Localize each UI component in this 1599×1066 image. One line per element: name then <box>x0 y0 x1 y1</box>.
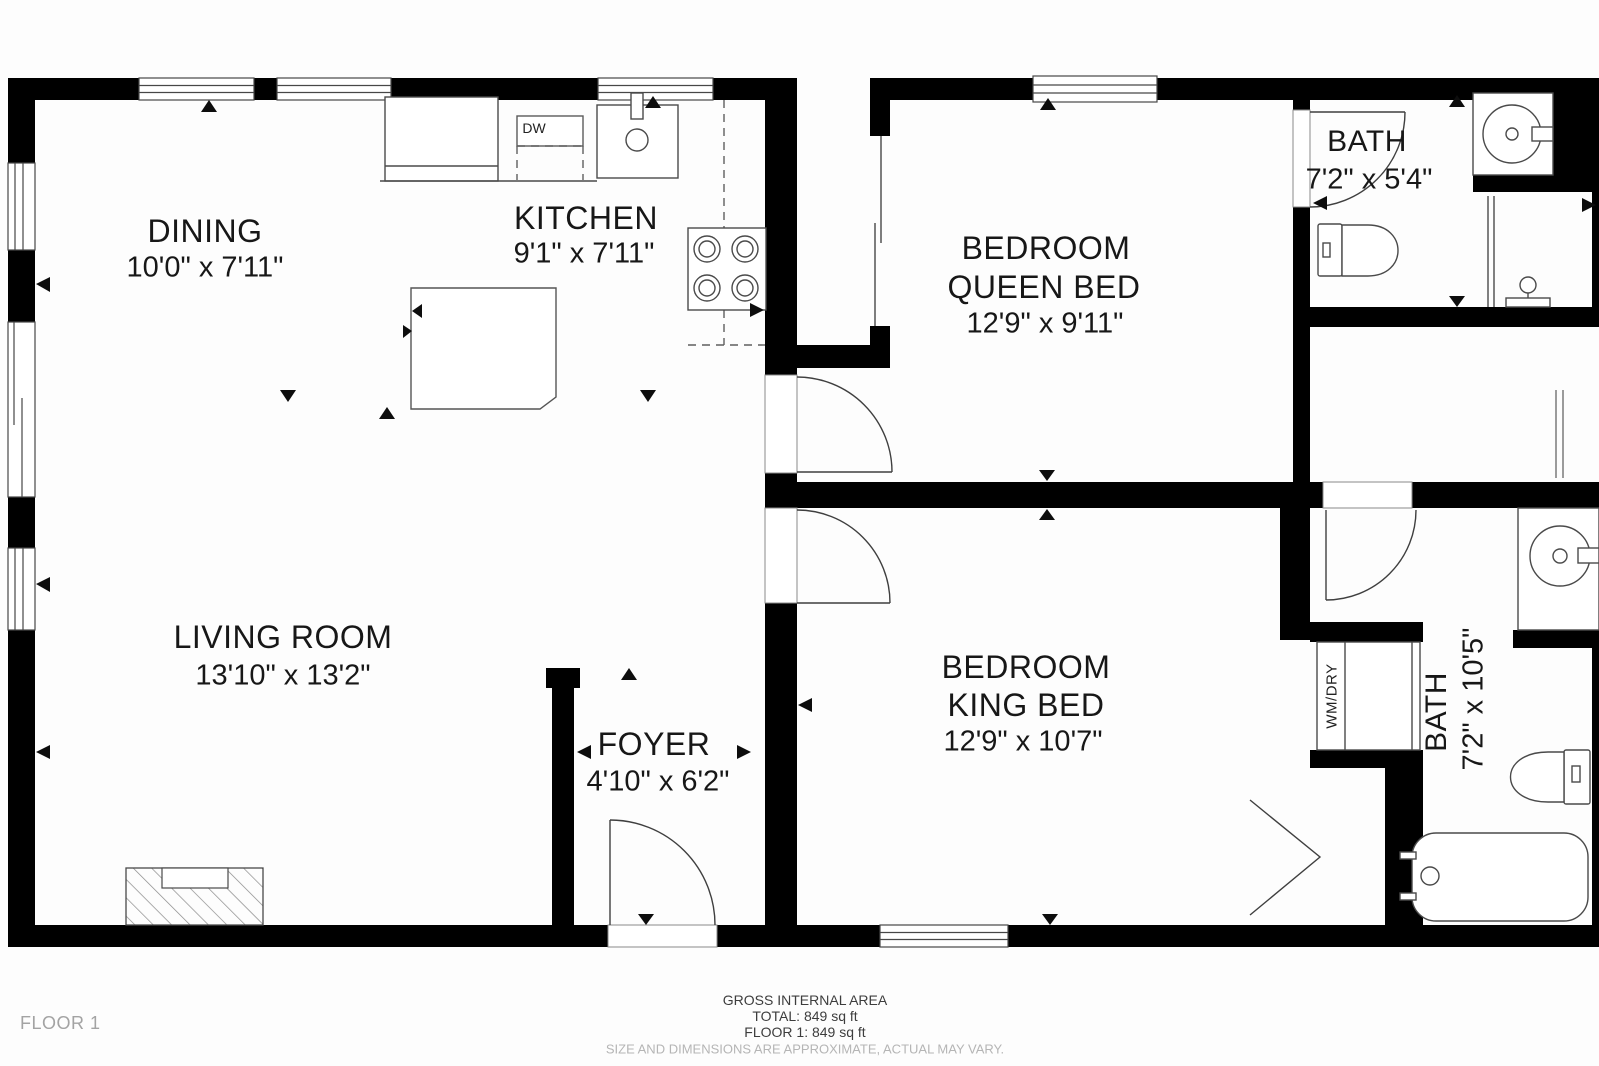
king-bedroom-label: BEDROOM <box>942 651 1111 683</box>
footer-total: TOTAL: 849 sq ft <box>752 1009 857 1023</box>
queen-closet-sliders <box>875 136 881 326</box>
bath-bottom-label: BATH <box>1422 672 1452 752</box>
footer-gross: GROSS INTERNAL AREA <box>723 993 887 1007</box>
bathtub-icon <box>1400 833 1588 921</box>
hall-cased-opening <box>1323 482 1412 508</box>
bath-top-dims: 7'2" x 5'4" <box>1306 166 1433 195</box>
king-bed-type: KING BED <box>948 689 1105 721</box>
dimension-arrows <box>36 95 1596 925</box>
bath-bottom-toilet-icon <box>1511 750 1591 804</box>
bath-top-toilet-icon <box>1318 224 1398 276</box>
entry-door <box>610 820 715 925</box>
floor-plan-page: DINING 10'0" x 7'11" KITCHEN 9'1" x 7'11… <box>0 0 1599 1066</box>
sliding-door-left <box>8 322 35 497</box>
floor-plan-drawing <box>0 0 1599 1066</box>
king-closet-chevron <box>1250 800 1320 915</box>
king-door <box>797 510 890 603</box>
queen-bedroom-dims: 12'9" x 9'11" <box>967 310 1124 339</box>
stove-icon <box>688 228 766 310</box>
dining-dims: 10'0" x 7'11" <box>127 254 284 283</box>
foyer-label: FOYER <box>598 728 711 760</box>
window-king-bedroom <box>880 925 1008 947</box>
living-room-label: LIVING ROOM <box>174 621 393 653</box>
queen-bedroom-label: BEDROOM <box>962 232 1131 264</box>
window-top-2 <box>277 78 391 100</box>
bath-bottom-sink-icon <box>1518 508 1599 630</box>
kitchen-island <box>411 288 556 409</box>
floor-tag: FLOOR 1 <box>20 1014 101 1032</box>
walls <box>8 78 1599 947</box>
queen-bed-type: QUEEN BED <box>948 271 1141 303</box>
dishwasher-label: DW <box>522 121 545 135</box>
living-room-dims: 13'10" x 13'2" <box>195 662 370 691</box>
foyer-dims: 4'10" x 6'2" <box>587 768 730 797</box>
fireplace-icon <box>126 868 263 925</box>
window-left-1 <box>8 163 35 250</box>
bath-top-sink-icon <box>1473 93 1553 175</box>
entry-door-opening <box>608 925 717 947</box>
king-bedroom-dims: 12'9" x 10'7" <box>943 728 1102 757</box>
queen-door-opening <box>765 375 797 473</box>
fridge-counter <box>385 97 498 181</box>
shower-icon <box>1488 196 1550 307</box>
hall-door <box>1326 510 1416 600</box>
window-right-middle <box>1556 390 1563 478</box>
bath-bottom-dims: 7'2" x 10'5" <box>1460 628 1489 771</box>
kitchen-sink-icon <box>597 93 678 178</box>
king-door-opening <box>765 508 797 603</box>
footer-disclaimer: SIZE AND DIMENSIONS ARE APPROXIMATE, ACT… <box>606 1043 1004 1056</box>
queen-door <box>797 377 892 472</box>
washer-dryer-label: WM/DRY <box>1325 663 1340 728</box>
footer-floor1: FLOOR 1: 849 sq ft <box>744 1025 865 1039</box>
window-kitchen-sink <box>598 78 713 100</box>
window-left-2 <box>8 548 35 630</box>
window-queen-bedroom <box>1033 76 1157 102</box>
kitchen-label: KITCHEN <box>514 202 658 234</box>
bath-top-label: BATH <box>1327 127 1407 157</box>
dining-label: DINING <box>148 215 263 247</box>
kitchen-dims: 9'1" x 7'11" <box>514 240 655 269</box>
window-top-1 <box>139 78 254 100</box>
